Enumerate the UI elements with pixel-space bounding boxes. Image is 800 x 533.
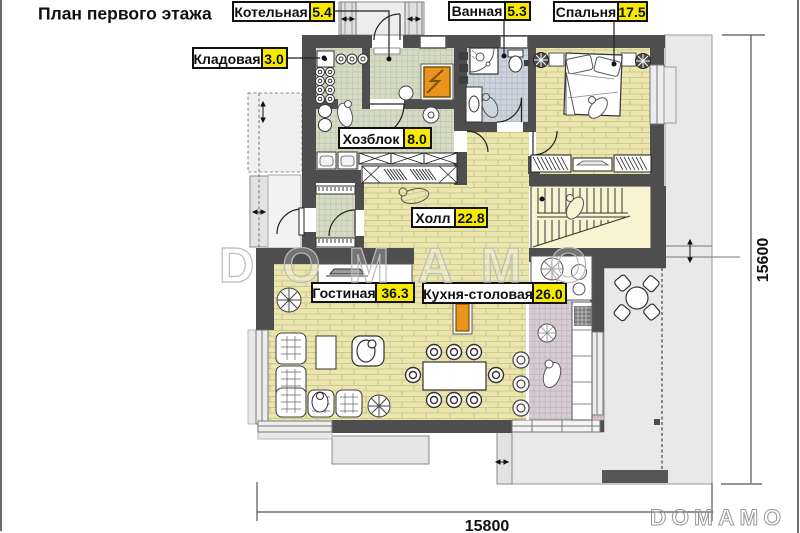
svg-text:Кладовая: Кладовая — [193, 51, 260, 67]
svg-text:DOMAMO: DOMAMO — [219, 239, 616, 293]
svg-text:17.5: 17.5 — [618, 4, 645, 20]
svg-text:22.8: 22.8 — [457, 210, 484, 226]
svg-text:8.0: 8.0 — [407, 131, 427, 147]
svg-text:5.4: 5.4 — [312, 4, 332, 20]
svg-text:Холл: Холл — [415, 210, 450, 226]
svg-text:15800: 15800 — [465, 518, 510, 533]
svg-text:Ванная: Ванная — [452, 3, 503, 19]
svg-text:План первого этажа: План первого этажа — [38, 4, 212, 24]
svg-text:3.0: 3.0 — [264, 51, 284, 67]
svg-text:5.3: 5.3 — [507, 3, 527, 19]
svg-text:Котельная: Котельная — [234, 4, 307, 20]
svg-text:Хозблок: Хозблок — [343, 131, 401, 147]
svg-text:DOMAMO: DOMAMO — [650, 505, 786, 530]
svg-text:15600: 15600 — [755, 238, 772, 283]
svg-text:Спальня: Спальня — [556, 4, 616, 20]
